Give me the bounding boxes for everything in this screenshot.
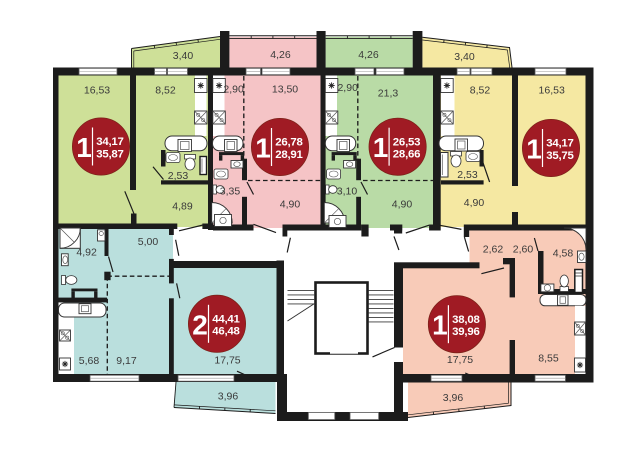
- svg-text:4,58: 4,58: [553, 248, 574, 260]
- svg-text:3,96: 3,96: [218, 391, 239, 403]
- svg-text:3,96: 3,96: [443, 392, 464, 404]
- svg-text:2,90: 2,90: [337, 82, 358, 94]
- svg-text:34,17: 34,17: [546, 138, 574, 150]
- svg-text:17,75: 17,75: [214, 355, 240, 367]
- svg-text:1: 1: [526, 134, 542, 165]
- svg-text:26,78: 26,78: [275, 137, 303, 149]
- svg-text:2,62: 2,62: [483, 244, 504, 256]
- svg-text:2,60: 2,60: [513, 244, 534, 256]
- svg-text:8,52: 8,52: [155, 85, 176, 97]
- svg-text:4,26: 4,26: [358, 49, 379, 61]
- svg-text:2,53: 2,53: [457, 169, 478, 181]
- svg-text:1: 1: [373, 132, 389, 163]
- svg-text:16,53: 16,53: [84, 85, 110, 97]
- svg-text:3,40: 3,40: [454, 51, 475, 63]
- svg-text:2: 2: [192, 309, 208, 340]
- svg-text:28,66: 28,66: [393, 149, 421, 161]
- svg-text:8,55: 8,55: [538, 353, 559, 365]
- svg-text:21,3: 21,3: [378, 88, 399, 100]
- svg-text:9,17: 9,17: [116, 355, 137, 367]
- svg-text:35,87: 35,87: [96, 148, 124, 160]
- svg-text:1: 1: [432, 310, 448, 341]
- svg-text:16,53: 16,53: [539, 85, 565, 97]
- svg-text:4,92: 4,92: [76, 247, 97, 259]
- svg-text:4,90: 4,90: [392, 199, 413, 211]
- svg-text:1: 1: [76, 132, 92, 163]
- svg-text:2,90: 2,90: [223, 84, 244, 96]
- svg-text:44,41: 44,41: [212, 314, 240, 326]
- svg-text:13,50: 13,50: [272, 84, 298, 96]
- svg-text:4,90: 4,90: [280, 199, 301, 211]
- svg-text:5,00: 5,00: [138, 236, 159, 248]
- svg-text:2,53: 2,53: [168, 170, 189, 182]
- svg-text:1: 1: [255, 133, 271, 164]
- svg-text:3,10: 3,10: [337, 186, 358, 198]
- svg-text:17,75: 17,75: [447, 354, 473, 366]
- svg-text:28,91: 28,91: [275, 149, 303, 161]
- svg-text:3,35: 3,35: [220, 186, 241, 198]
- svg-text:4,89: 4,89: [172, 201, 193, 213]
- svg-text:39,96: 39,96: [452, 326, 480, 338]
- svg-text:26,53: 26,53: [393, 136, 421, 148]
- svg-text:38,08: 38,08: [452, 314, 480, 326]
- svg-text:3,40: 3,40: [173, 50, 194, 62]
- svg-text:34,17: 34,17: [96, 136, 124, 148]
- svg-text:4,26: 4,26: [270, 49, 291, 61]
- svg-text:4,90: 4,90: [464, 197, 485, 209]
- svg-text:46,48: 46,48: [212, 326, 240, 338]
- svg-text:8,52: 8,52: [470, 85, 491, 97]
- svg-text:5,68: 5,68: [79, 355, 100, 367]
- svg-text:35,75: 35,75: [546, 150, 574, 162]
